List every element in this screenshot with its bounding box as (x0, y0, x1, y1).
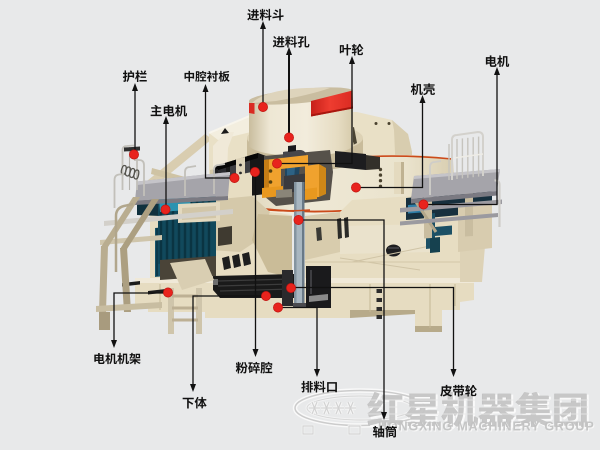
svg-text:HONGXING MACHINERY GROUP: HONGXING MACHINERY GROUP (378, 420, 595, 434)
